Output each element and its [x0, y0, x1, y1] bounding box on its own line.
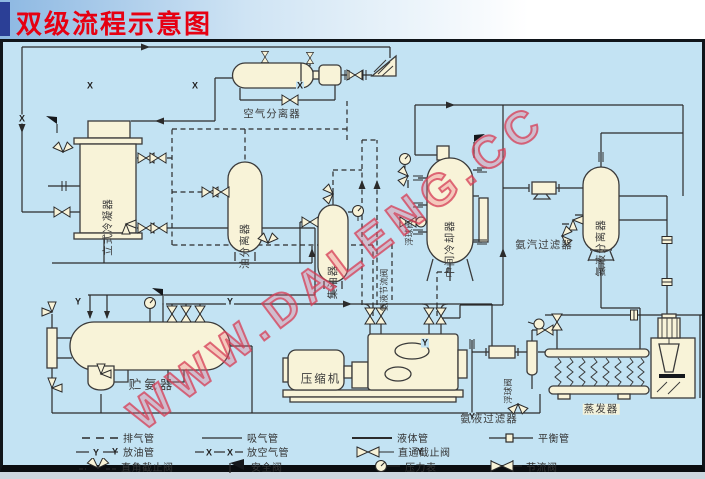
label-ammonia-vapor-filter: 氨汽过滤器 [515, 240, 573, 251]
label-float-valve-lower: 浮球阀 [504, 378, 513, 404]
legend-item-oil-drain-pipe: Y 放油管 [74, 444, 155, 459]
legend-item-throttle-valve: 节流阀 [487, 458, 558, 474]
legend-item-pressure-gauge: 压力表 [372, 458, 437, 474]
svg-text:X: X [227, 447, 233, 457]
pipes-dashed [137, 100, 448, 316]
pipe-mark-x: X [86, 82, 94, 91]
svg-text:Y: Y [93, 447, 99, 457]
pipe-mark-x: X [18, 115, 26, 124]
intermediate-cooler-vessel [427, 146, 488, 281]
balance-line-icon [487, 431, 535, 445]
label-ammonia-throttle-valve: 氨液节流阀 [380, 269, 389, 312]
label-vertical-condenser: 立式冷凝器 [103, 198, 114, 256]
straight-stop-valve-icon [355, 445, 395, 459]
legend-item-exhaust-pipe: 排气管 [80, 430, 155, 445]
label-ammonia-liquid-separator: 氨液分离器 [596, 219, 607, 277]
legend-item-angle-stop-valve: 直角截止阀 [78, 458, 174, 474]
air-release-line-icon: XX [194, 445, 244, 459]
svg-text:X: X [206, 447, 212, 457]
flow-diagram-page: 双级流程示意图 [0, 0, 705, 479]
pipe-mark-y: Y [74, 298, 82, 307]
evaporator-tank [527, 341, 649, 399]
label-intermediate-cooler: 中间冷却器 [445, 220, 456, 278]
legend-item-suction-pipe: 吸气管 [200, 430, 279, 445]
pressure-gauge-icon [372, 458, 402, 474]
air-separator-vessel [233, 63, 342, 88]
label-air-separator: 空气分离器 [243, 109, 301, 120]
legend-item-safety-valve: 安全阀 [222, 458, 283, 474]
legend-item-straight-stop-valve: 直通截止阀 [355, 444, 451, 459]
pipe-mark-x: X [191, 82, 199, 91]
agitator-unit [651, 314, 695, 398]
title-bar: 双级流程示意图 [0, 0, 705, 39]
pipe-mark-x: X [296, 82, 304, 91]
label-ammonia-receiver: 贮氨器 [129, 379, 176, 392]
oil-drain-line-icon: Y [74, 445, 120, 459]
safety-valve-icon [222, 458, 248, 474]
pressure-gauges [145, 154, 411, 314]
pipe-mark-y: Y [421, 339, 429, 348]
label-oil-separator: 油分离器 [240, 223, 251, 269]
ammonia-liquid-filter-device [486, 346, 518, 358]
label-float-valve-upper: 浮球阀 [405, 220, 414, 246]
angle-stop-valve-icon [78, 458, 118, 474]
throttle-valve-icon [487, 458, 523, 474]
label-ammonia-liquid-filter: 氨液过滤器 [460, 414, 518, 425]
liquid-line-icon [350, 431, 394, 445]
legend-item-liquid-pipe: 液体管 [350, 430, 429, 445]
label-oil-collector: 集油器 [328, 265, 339, 300]
label-compressor: 压缩机 [301, 374, 342, 386]
label-evaporator: 蒸发器 [583, 404, 620, 415]
title-accent-block [0, 2, 10, 36]
legend-item-air-release-pipe: XX 放空气管 [194, 444, 289, 459]
vent-funnel [372, 56, 396, 76]
legend-item-balance-pipe: 平衡管 [487, 430, 570, 445]
page-title: 双级流程示意图 [16, 4, 212, 41]
solid-line-icon [200, 431, 244, 445]
pipe-mark-y: Y [226, 298, 234, 307]
ammonia-vapor-filter-device [529, 182, 559, 199]
dashed-line-icon [80, 431, 120, 445]
